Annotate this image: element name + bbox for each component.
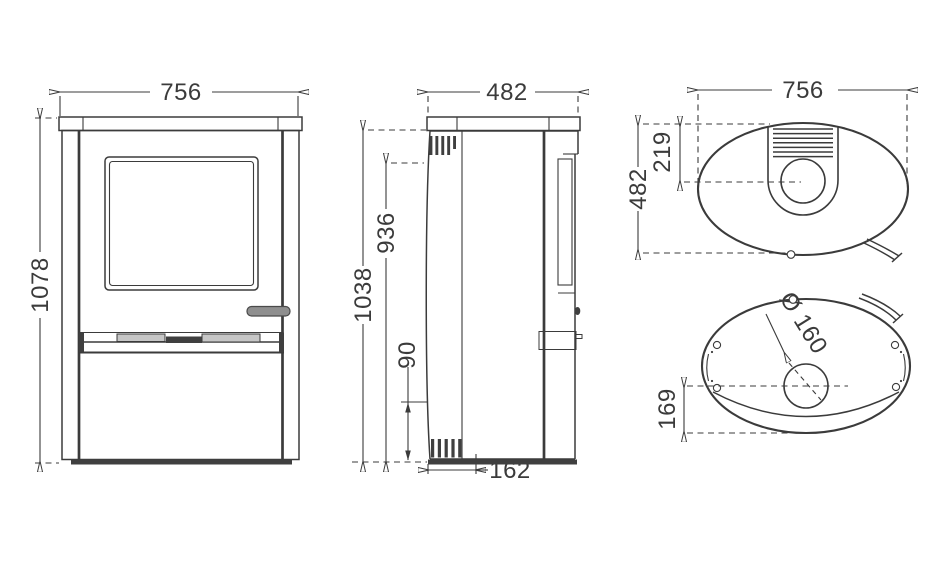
dim-side-height: 1038: [350, 267, 377, 322]
dim-front-height: 1078: [27, 257, 54, 312]
bottom-view: Ø 160 169: [654, 287, 910, 433]
flue-collar-top: [781, 159, 825, 203]
rear-contour: [426, 131, 430, 459]
dim-rear-outlet-lines: [386, 163, 424, 461]
base-plinth-front: [71, 460, 292, 465]
side-glass: [558, 159, 572, 285]
side-view: 482 1038 936 90 162: [350, 79, 582, 484]
dim-top-flue-offset: 219: [649, 131, 676, 173]
dim-bottom-flue-offset-lines: [684, 386, 848, 433]
door-handle-front: [247, 307, 290, 317]
dim-lower-vent-height: 90: [394, 341, 421, 369]
latch-pin-bottom: [789, 296, 797, 304]
handle-end-side: [575, 307, 581, 315]
top-grille: [773, 129, 833, 157]
front-air-grille: [79, 333, 284, 353]
top-plate-front: [59, 117, 302, 131]
stove-dimension-drawing: 756 1078: [0, 0, 950, 578]
base-edge-inner: [713, 392, 899, 417]
top-view: 756 482 219: [625, 77, 908, 262]
dim-front-width: 756: [160, 79, 202, 106]
door-handle-top: [864, 239, 902, 262]
latch-pin-top: [787, 251, 795, 259]
front-body-outline: [62, 131, 299, 460]
dim-side-depth: 482: [486, 79, 528, 106]
base-plinth-side: [428, 460, 577, 465]
dim-rear-outlet-height: 936: [373, 212, 400, 254]
front-view: 756 1078: [27, 79, 302, 465]
side-air-grille: [539, 332, 582, 350]
rear-top-vents: [430, 136, 457, 155]
dim-bottom-flue-offset: 169: [654, 388, 681, 430]
flue-shroud: [768, 127, 838, 215]
door-window-inner: [110, 162, 254, 286]
top-plate-side: [427, 117, 580, 131]
door-window-outer: [105, 157, 258, 290]
dim-lower-vent-lines: [401, 367, 427, 461]
rear-bottom-vents: [431, 439, 461, 458]
dim-top-width: 756: [782, 77, 824, 104]
dim-top-depth: 482: [625, 168, 652, 210]
technical-drawing-page: 756 1078: [0, 0, 950, 578]
